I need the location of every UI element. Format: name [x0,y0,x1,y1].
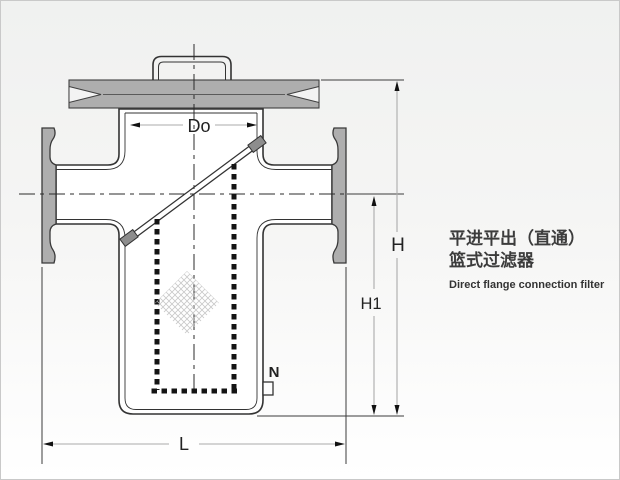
dimension-l: L [43,434,345,454]
h-arrow-bottom [395,405,400,415]
inlet-flange [42,128,56,263]
h-arrow-top [395,81,400,91]
l-arrow-left [43,442,53,447]
product-title-zh-line2: 篮式过滤器 [449,250,614,272]
lifting-handle [153,57,231,81]
n-label: N [269,364,280,381]
dimension-h1: H1 [360,196,381,415]
h1-label: H1 [360,295,381,313]
h-label: H [391,235,405,256]
dimension-h: H [391,81,405,415]
h1-arrow-top [372,196,377,206]
product-title-block: 平进平出（直通） 篮式过滤器 Direct flange connection … [449,228,614,291]
filter-drawing-page: Do H H1 L N 平进平出（直通） [0,0,620,480]
l-arrow-right [335,442,345,447]
do-label: Do [187,116,210,136]
h1-arrow-bottom [372,405,377,415]
product-title-en: Direct flange connection filter [449,279,614,291]
l-label: L [179,434,189,454]
outlet-flange [332,128,346,263]
product-title-zh-line1: 平进平出（直通） [449,228,614,250]
drain-connection [263,382,273,395]
